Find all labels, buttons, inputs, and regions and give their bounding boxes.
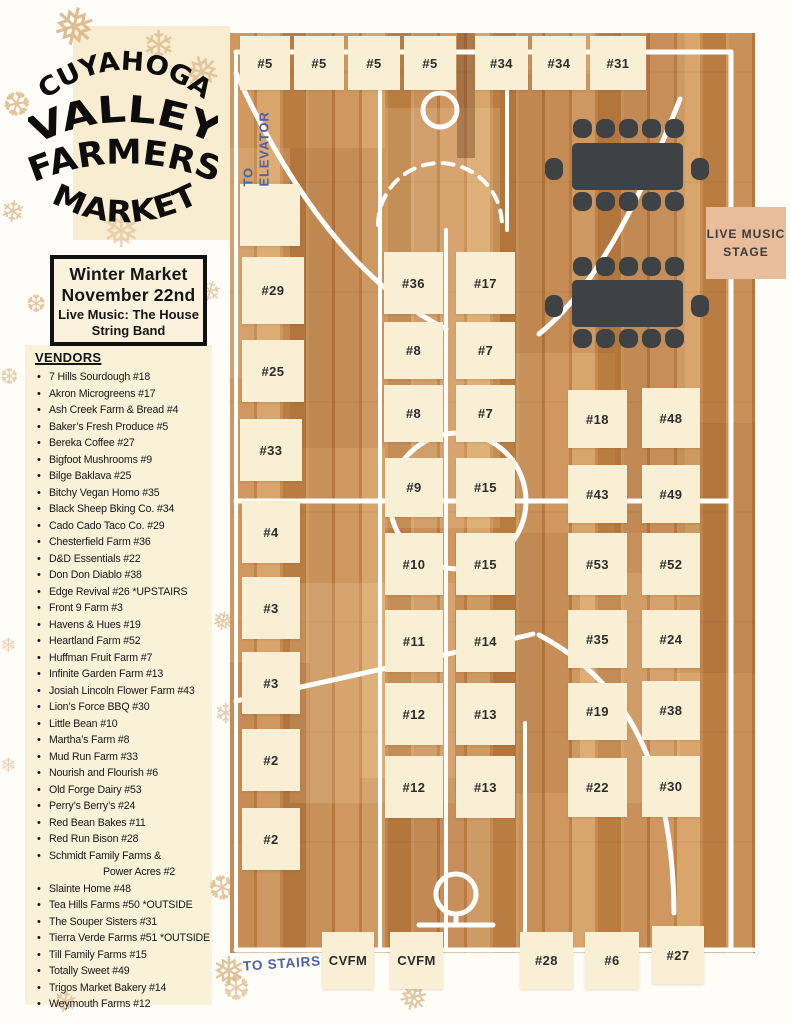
vendor-item: Chesterfield Farm #36: [35, 534, 210, 551]
live-music-stage: LIVE MUSIC STAGE: [706, 207, 786, 279]
vendor-item: Bigfoot Mushrooms #9: [35, 452, 210, 469]
vendor-item: Weymouth Farms #12: [35, 996, 210, 1013]
vendor-item: Don Don Diablo #38: [35, 567, 210, 584]
vendor-item: Slainte Home #48: [35, 881, 210, 898]
vendor-item: Josiah Lincoln Flower Farm #43: [35, 683, 210, 700]
snowflake-icon: ❆: [222, 972, 251, 1006]
event-info-box: Winter Market November 22nd Live Music: …: [50, 255, 207, 346]
vendor-item: Bilge Baklava #25: [35, 468, 210, 485]
vendor-item: Edge Revival #26 *UPSTAIRS: [35, 584, 210, 601]
market-map-poster: ❅❄❆❅❄❅❆❄❆❅❄❆❅❄❆❅❄❄ CUYAHOGA VALLEY FARME…: [0, 0, 791, 1024]
snowflake-icon: ❄: [0, 196, 27, 229]
vendor-list: 7 Hills Sourdough #18Akron Microgreens #…: [35, 369, 210, 1013]
vendor-item: Akron Microgreens #17: [35, 386, 210, 403]
vendor-item: Trigos Market Bakery #14: [35, 980, 210, 997]
vendor-item: Red Bean Bakes #11: [35, 815, 210, 832]
snowflake-icon: ❄: [0, 636, 17, 656]
vendor-item: Lion’s Force BBQ #30: [35, 699, 210, 716]
stage-label: LIVE MUSIC STAGE: [706, 225, 786, 261]
vendor-item: Ash Creek Farm & Bread #4: [35, 402, 210, 419]
gym-floor-map: [230, 33, 755, 953]
vendor-item: Heartland Farm #52: [35, 633, 210, 650]
vendor-item: Nourish and Flourish #6: [35, 765, 210, 782]
vendor-item: Till Family Farms #15: [35, 947, 210, 964]
event-title: Winter Market: [54, 264, 203, 285]
vendor-item: The Souper Sisters #31: [35, 914, 210, 931]
vendor-item: Power Acres #2: [35, 864, 210, 881]
vendor-item: Baker’s Fresh Produce #5: [35, 419, 210, 436]
vendor-item: Red Run Bison #28: [35, 831, 210, 848]
svg-text:CUYAHOGA: CUYAHOGA: [33, 47, 217, 106]
snowflake-icon: ❄: [0, 756, 17, 776]
vendor-item: Bereka Coffee #27: [35, 435, 210, 452]
cuyahoga-valley-farmers-market-logo: CUYAHOGA VALLEY FARMERS MARKET: [28, 30, 218, 235]
vendor-item: Front 9 Farm #3: [35, 600, 210, 617]
logo-word-cuyahoga: CUYAHOGA: [33, 47, 217, 106]
vendor-item: Havens & Hues #19: [35, 617, 210, 634]
event-live-music: Live Music: The House String Band: [54, 307, 203, 339]
vendor-item: Infinite Garden Farm #13: [35, 666, 210, 683]
vendor-item: Black Sheep Bking Co. #34: [35, 501, 210, 518]
vendor-item: Totally Sweet #49: [35, 963, 210, 980]
to-stairs-label: TO STAIRS: [243, 953, 322, 973]
vendor-item: Bitchy Vegan Homo #35: [35, 485, 210, 502]
vendor-item: Cado Cado Taco Co. #29: [35, 518, 210, 535]
vendor-item: D&D Essentials #22: [35, 551, 210, 568]
logo-word-market: MARKET: [47, 177, 204, 230]
vendors-section: VENDORS 7 Hills Sourdough #18Akron Micro…: [35, 350, 210, 1013]
vendor-item: Perry’s Berry’s #24: [35, 798, 210, 815]
vendor-item: Mud Run Farm #33: [35, 749, 210, 766]
event-date: November 22nd: [54, 285, 203, 306]
vendor-item: Huffman Fruit Farm #7: [35, 650, 210, 667]
vendor-item: Little Bean #10: [35, 716, 210, 733]
vendors-heading: VENDORS: [35, 350, 210, 365]
snowflake-icon: ❅: [393, 976, 433, 1020]
vendor-item: Martha’s Farm #8: [35, 732, 210, 749]
court-markings: [230, 33, 755, 953]
vendor-item: Old Forge Dairy #53: [35, 782, 210, 799]
svg-text:MARKET: MARKET: [47, 177, 204, 230]
vendor-item: 7 Hills Sourdough #18: [35, 369, 210, 386]
vendor-item: Tea Hills Farms #50 *OUTSIDE: [35, 897, 210, 914]
to-elevator-label: TO ELEVATOR: [241, 92, 273, 187]
snowflake-icon: ❆: [26, 293, 46, 317]
snowflake-icon: ❆: [0, 366, 18, 388]
vendor-item: Schmidt Family Farms &: [35, 848, 210, 865]
vendor-item: Tierra Verde Farms #51 *OUTSIDE: [35, 930, 210, 947]
